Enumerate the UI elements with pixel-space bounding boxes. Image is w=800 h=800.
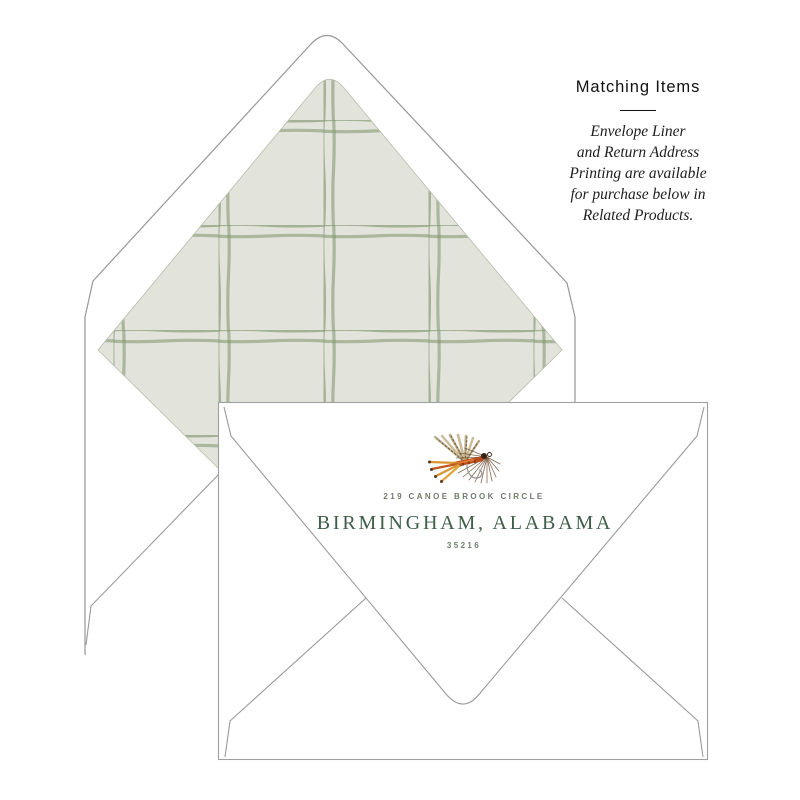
matching-items-text-line: and Return Address [557,142,719,163]
divider-line [620,110,656,111]
matching-items-title: Matching Items [557,78,719,97]
return-address-street: 219 CANOE BROOK CIRCLE [383,492,544,501]
return-address-city-state: BIRMINGHAM, ALABAMA [317,512,614,535]
return-address-zip: 35216 [447,541,481,550]
closed-envelope-back [219,403,708,760]
matching-items-text-line: Printing are available [557,163,719,184]
matching-items-block: Matching Items Envelope Liner and Return… [557,78,719,226]
matching-items-text-line: for purchase below in [557,184,719,205]
product-mockup-image: Matching Items Envelope Liner and Return… [0,0,800,800]
matching-items-text-line: Envelope Liner [557,121,719,142]
matching-items-text-line: Related Products. [557,205,719,226]
